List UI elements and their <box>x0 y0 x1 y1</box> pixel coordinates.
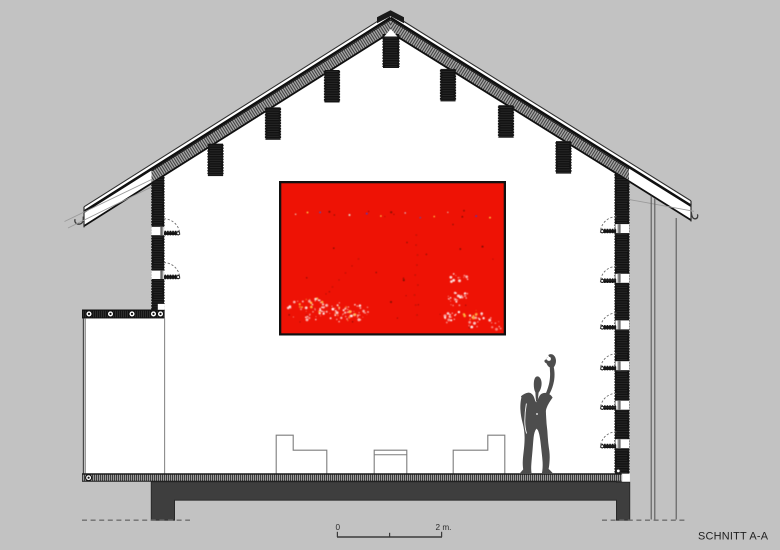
svg-text:0: 0 <box>336 523 341 532</box>
svg-text:2 m.: 2 m. <box>436 523 452 532</box>
svg-text:SCHNITT A-A: SCHNITT A-A <box>698 530 769 542</box>
